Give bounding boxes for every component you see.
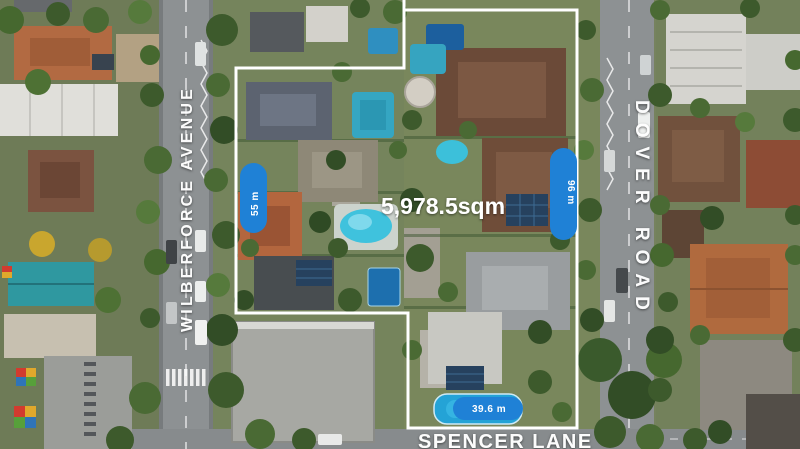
car (604, 150, 615, 172)
building-roof (306, 6, 348, 42)
measurement-label-east: 96 m (565, 180, 576, 205)
measurement-label-west: 55 m (250, 191, 261, 216)
gazebo-roof (405, 77, 435, 107)
site-area-label: 5,978.5sqm (381, 193, 505, 219)
solar-panels (506, 194, 548, 226)
car (318, 434, 342, 445)
car (640, 55, 651, 75)
pool (436, 140, 468, 164)
car (604, 300, 615, 322)
building-roof (746, 140, 800, 208)
car (166, 240, 177, 264)
street-label-dover-road: DOVER ROAD (631, 100, 652, 319)
pool (368, 268, 400, 306)
car (195, 281, 206, 302)
street-label-spencer-lane: SPENCER LANE (418, 431, 593, 449)
pool (368, 28, 398, 54)
car (166, 302, 177, 324)
measurement-label-south: 39.6 m (472, 404, 506, 415)
building-roof (30, 38, 90, 66)
building-roof (4, 314, 96, 358)
solar-panels (446, 366, 484, 390)
building-roof (666, 14, 746, 104)
solar-panels (92, 54, 114, 70)
aerial-photo: 55 m 96 m 39.6 m WILBERFORCE AVENUE DOVE… (0, 0, 800, 449)
aerial-scene: 55 m 96 m 39.6 m WILBERFORCE AVENUE DOVE… (0, 0, 800, 449)
car (195, 230, 206, 252)
car (616, 268, 628, 293)
street-label-wilberforce-avenue: WILBERFORCE AVENUE (179, 86, 196, 332)
building-roof (0, 84, 118, 136)
car (195, 42, 206, 66)
building-roof (250, 12, 304, 52)
solar-panels (296, 260, 332, 286)
kerb (159, 0, 163, 449)
car (195, 320, 207, 345)
pool (410, 44, 446, 74)
building-roof (746, 394, 800, 449)
